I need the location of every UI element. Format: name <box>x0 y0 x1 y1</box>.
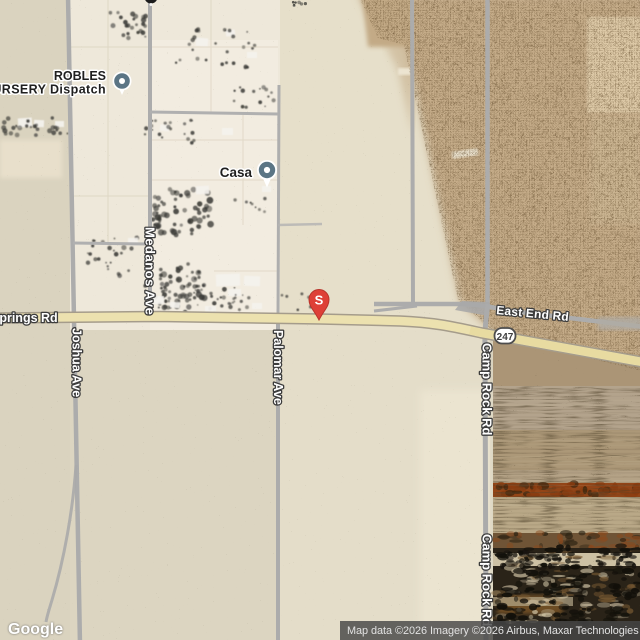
svg-text:Springs Rd: Springs Rd <box>0 311 58 325</box>
svg-text:247: 247 <box>497 332 514 343</box>
svg-text:ROBLES: ROBLES <box>54 69 106 83</box>
svg-text:Palomar Ave: Palomar Ave <box>271 330 285 405</box>
svg-text:Camp Rock Rd: Camp Rock Rd <box>480 534 495 627</box>
svg-text:Map data ©2026 Imagery ©2026 A: Map data ©2026 Imagery ©2026 Airbus, Max… <box>347 625 639 637</box>
svg-text:NURSERY Dispatch: NURSERY Dispatch <box>0 83 106 97</box>
svg-text:Camp Rock Rd: Camp Rock Rd <box>480 343 495 436</box>
svg-text:Medanos Ave: Medanos Ave <box>143 227 158 315</box>
svg-text:Casa: Casa <box>220 165 253 180</box>
svg-text:Joshua Ave: Joshua Ave <box>70 328 84 397</box>
svg-text:S: S <box>315 293 324 308</box>
svg-text:Google: Google <box>8 621 63 638</box>
